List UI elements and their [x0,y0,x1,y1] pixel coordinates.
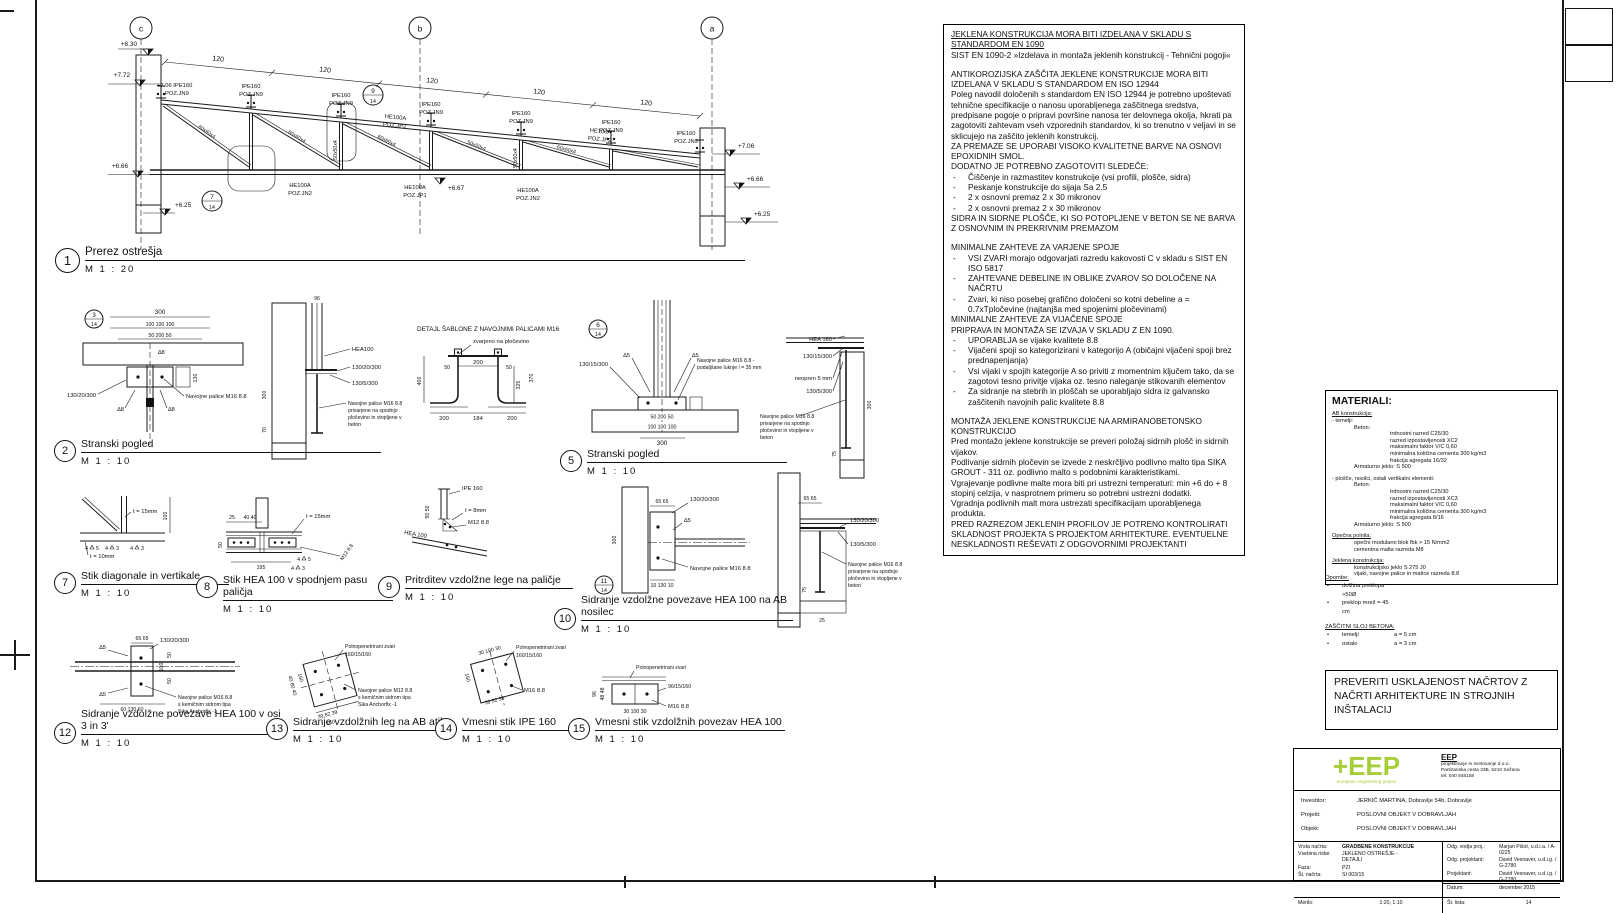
field-value: 1:20, 1:10 [1342,900,1442,906]
dim-label: 160 [463,673,471,683]
dim-label: 160 [296,673,304,683]
member-label: IPE 160 [462,486,483,492]
member-label: POZ.JP1 [403,193,427,199]
dim-label: 300 [155,309,166,316]
company-info: EEP projektiranje in svetovanje d.o.o. P… [1439,749,1560,790]
level-label: +6.67 [448,185,465,192]
text-line: •ostaloa = 3 cm [1325,640,1515,648]
text-line: minimalna količina cementa 300 kg/m3 [1332,509,1551,516]
dim-label: 50 [167,652,173,658]
weld-label: 3 [302,566,305,572]
text-line: •temeljia = 5 cm [1325,631,1515,639]
bolt-label: M12 8.8 [339,543,355,562]
dim-label: 75 [832,451,838,457]
plate-label: 96/15/160 [668,684,691,690]
dim-label: 50 200 50 [148,333,171,339]
detail-13: Polnopenetrirani zvari 160/15/160 160 40… [286,643,412,727]
dim-label: 40 40 [244,515,257,521]
dim-label: 30 100 30 [478,645,502,657]
text-line: trdnostni razred C25/30 [1332,489,1551,496]
caption-15: 15 Vmesni stik vzdolžnih povezav HEA 100… [568,716,785,745]
plate-label: t = 10mm [90,554,114,560]
caption-14: 14 Vmesni stik IPE 160 M 1 : 10 [435,716,574,745]
field-label: Odg. vodja proj.: [1443,844,1499,850]
detail-title: Stik HEA 100 v spodnjem pasu paličja [223,574,393,601]
detail-title: Stranski pogled [81,438,381,453]
detail-2-side: 96 HEA100 130/20/300 130/5/300 Navojne p… [262,296,402,459]
member-label: HEA 160 [809,337,832,343]
text-line: Armaturno jeklo: S 500 [1332,464,1551,471]
detail-number-circle: 5 [560,450,582,472]
detail-scale: M 1 : 10 [587,463,787,477]
text-line: konstrukcijsko jeklo S 275 J0 [1332,565,1551,572]
text-line: Podlivanje sidrnih pločevin se izvede z … [951,457,1237,478]
caption-1: 1 Prerez ostrešja M 1 : 20 [55,246,745,275]
company-line: tel: 040 848158 [1441,774,1558,780]
text-line: - plošče, nosilci, ostali vertikalni ele… [1332,476,1551,483]
dim-label: 75 [802,587,808,593]
dim-label: 300 [867,401,873,410]
text-line: Opečna polnila: [1332,533,1551,540]
field-label: Odg. projektant: [1443,857,1499,863]
template-detail: DETAJL ŠABLONE Z NAVOJNIMI PALICAMI M16 … [417,324,560,422]
detail-title: Prerez ostrešja [85,246,745,261]
dim-label: 370 [529,374,535,383]
text-line: Beton: [1332,482,1551,489]
detail-title: Vmesni stik vzdolžnih povezav HEA 100 [595,716,785,731]
eep-logo-text: +EEP [1333,755,1400,778]
dim-label: 200 [439,416,449,422]
fold-tick [934,876,936,888]
dim-label: 200 [473,360,483,366]
text-line: Beton: [1332,425,1551,432]
weld-label: 4 [291,566,294,572]
detail-number-circle: 7 [54,572,76,594]
detail-title: Sidranje vzdolžne povezave HEA 100 na AB… [581,594,793,621]
anchor-label: Navojne palice M16 8.8 [848,562,902,568]
drawing-meta-right: Odg. vodja proj.: Marjan Pišot, u.d.i.a.… [1443,842,1560,913]
text-line: frakcija agregata 16/32 [1332,458,1551,465]
anchor-label: Navojne palice M16 8.8 [178,695,232,701]
dim-label: 50 [167,678,173,684]
field-value: POSLOVNI OBJEKT V DOBRAVLJAH [1357,812,1456,818]
drawing-canvas: c b a 60x60x4 60x60x4 60x60x4 [0,0,940,775]
weld-label: 3 [141,546,144,552]
weld-label: 5 [96,546,99,552]
notes-panel: Opombe:•dolžina preklopa >50Ø•preklop mr… [1325,574,1515,648]
weld-label: 4 [105,546,108,552]
member-label: HE100A [289,183,311,189]
purlin-label: IPE160 [511,111,530,117]
detail-5-base: 6 14 50 200 50 100 100 100 300 ∆5 ∆5 130… [579,300,761,447]
callout-number: 7 [210,194,214,201]
detail-10-right: 65 65 130/20/300 130/5/300 Navojne palic… [778,473,902,627]
weld-label: Polnopenetrirani zvari [636,665,686,671]
field-value: David Vesnaver, u.d.i.g. / G-2780 [1499,857,1560,869]
field-value: SI 003/15 [1342,872,1442,878]
field-label: Vsebina risbe: [1294,851,1342,857]
text-line: DODATNO JE POTREBNO ZAGOTOVITI SLEDEČE: [951,161,1237,171]
purlin-label: POZ.JN9 [239,92,263,98]
weld-label: ∆5 [684,518,691,524]
corner-box [1565,44,1613,82]
field-label: Projekt: [1294,812,1357,818]
detail-2-plan: 3 14 300 100 100 100 50 200 50 ∆8 ∆8 ∆8 … [67,309,247,445]
detail-title: Stranski pogled [587,448,787,463]
member-label: HE100A [384,114,406,122]
text-line: •preklop mrež = 45 cm [1325,599,1515,616]
detail-9: IPE 160 t = 8mm M12 8.8 HEA 100 50 50 [404,486,489,556]
dim-label: 300 [612,536,618,545]
detail-scale: M 1 : 10 [581,621,793,635]
text-line: -Peskanje konstrukcije do sijaja Sa 2.5 [951,182,1237,192]
purlin-label: IPE160 [601,120,620,126]
fold-tick [624,876,626,888]
detail-number-circle: 10 [554,608,576,630]
dim-label: 25 [819,618,825,624]
plate-label: t = 8mm [465,508,486,514]
member-label: HE100A [404,185,426,191]
text-line [951,60,1237,69]
detail-title: Sidranje vzdolžnih leg na AB atiko [293,716,453,731]
detail-scale: M 1 : 10 [405,589,573,603]
text-line: opečni modularni blok fbk > 15 N/mm2 [1332,540,1551,547]
plate-label: 160/15/160 [516,653,542,659]
dim-label: 100 [163,512,169,521]
dim-label: 50 [218,542,224,548]
detail-scale: M 1 : 10 [223,601,393,615]
plate-label: t = 15mm [306,514,330,520]
text-line: Vgradnja podlivnih malt mora ustrezati s… [951,498,1237,519]
dim-label: 120 [426,77,438,85]
text-line: Vgrajevanje podlivne malte mora biti pri… [951,478,1237,499]
dim-label: 50 [444,365,450,371]
dim-label: 39 82 39 [484,695,505,706]
member-label: POZ.JP2 [383,122,407,130]
detail-15: Polnopenetrirani zvari 96/15/160 M16 8.8… [592,665,691,715]
title-block: +EEP european engineering project EEP pr… [1293,748,1561,881]
dim-label: 184 [473,416,483,422]
level-label: +6.25 [754,211,771,218]
member-label: HE100A [589,128,611,136]
plate-label: 130/20/300 [352,365,381,371]
text-line: MONTAŽA JEKLENE KONSTRUKCIJE NA ARMIRANO… [951,416,1237,437]
titleblock-header: +EEP european engineering project EEP pr… [1294,749,1560,791]
company-name: EEP [1441,753,1558,762]
dim-label: 120 [533,88,545,96]
level-label: +7.06 [738,143,755,150]
caption-9: 9 Pritrditev vzdolžne lege na paličje M … [378,574,573,603]
anchor-label: beton [760,435,773,441]
main-truss-drawing: c b a 60x60x4 60x60x4 60x60x4 [108,17,778,250]
anchor-label: Navojne palice M16 8.8 [348,401,402,407]
bolt-label: M12 8.8 [468,520,489,526]
anchor-label: Navojne palice M12 8.8 [358,688,412,694]
anchor-label: privarjene na spodnjo [348,408,398,414]
field-label: Datum: [1443,885,1499,891]
text-line: razred izpostavljenosti XC2 [1332,438,1551,445]
plate-label: 130/5/300 [850,542,876,548]
text-line [1325,616,1515,623]
dim-label: 96 [314,296,320,302]
purlin-label: POZ.JN9 [509,119,533,125]
purlin-label: POZ.JN9 [674,139,698,145]
detail-title: Sidranje vzdolžne povezave HEA 100 v osi… [81,708,281,735]
member-label: HEA100 [352,347,374,353]
member-label: 60x60x4 [556,144,577,155]
dim-label: 300 [262,391,268,400]
text-line: - temelji: [1332,418,1551,425]
plate-label: 130/20/300 [690,497,719,503]
detail-heading: DETAJL ŠABLONE Z NAVOJNIMI PALICAMI M16 [417,324,560,333]
purlin-label: POZ.JN9 [165,91,189,97]
level-label: +6.25 [175,202,192,209]
text-line: razred izpostavljenosti XC3 [1332,496,1551,503]
sheet-border-right [1562,0,1564,882]
field-value: David Vesnaver, u.d.i.g. / G-2780 [1499,871,1560,883]
member-label: POZ.JN2 [288,191,312,197]
field-label: Investitor: [1294,798,1357,804]
text-line: PRED RAZREZOM JEKLENIH PROFILOV JE POTRE… [951,519,1237,550]
drawing-meta-left: Vrsta načrta: GRADBENE KONSTRUKCIJE Vseb… [1294,842,1443,913]
text-line: PRIPRAVA IN MONTAŽA SE IZVAJA V SKLADU Z… [951,325,1237,335]
text-line: -2 x osnovni premaz 2 x 30 mikronov [951,203,1237,213]
dim-label: 400 [417,377,423,386]
member-label: POZ.JN2 [516,196,540,202]
text-line: -Zvari, ki niso posebej grafično določen… [951,294,1237,315]
dim-label: 50 200 50 [650,415,673,421]
callout-sheet: 14 [209,205,215,211]
ref-sheet: 14 [595,332,601,338]
weld-label: ∆5 [99,692,106,698]
dim-label: 100 [159,663,165,672]
detail-scale: M 1 : 10 [595,731,785,745]
dim-label: 50 50 [425,505,431,518]
bolt-label: M16 8.8 [668,704,689,710]
plate-label: 130/20/300 [160,638,189,644]
verify-note-box: PREVERITI USKLAJENOST NAČRTOV Z NAČRTI A… [1325,670,1558,730]
detail-number-circle: 15 [568,718,590,740]
text-line: -Za sidranje na stebrih in ploščah se up… [951,386,1237,407]
purlin-label: IPE160 [421,102,440,108]
anchor-label: privarjene na spodnjo [760,421,810,427]
text-line: ZA PREMAZE SE UPORABI VISOKO KVALITETNE … [951,141,1237,162]
caption-10: 10 Sidranje vzdolžne povezave HEA 100 na… [554,594,793,635]
dim-label: 65 65 [656,499,669,505]
dim-label: 130 [193,374,199,383]
text-line: •dolžina preklopa >50Ø [1325,582,1515,599]
caption-12: 12 Sidranje vzdolžne povezave HEA 100 v … [54,708,281,749]
eep-logo-tagline: european engineering project [1337,779,1397,784]
project-info: Investitor: JERKIČ MARTINA, Dobravlje 54… [1294,791,1560,842]
text-line: AB konstrukcija: [1332,411,1551,418]
plate-label: t = 15mm [133,509,157,515]
detail-scale: M 1 : 10 [81,735,281,749]
material-label: neopren 5 mm [795,376,833,382]
plate-label: 130/20/300 [850,518,879,524]
member-label: HE100A [517,188,539,194]
ref-number: 3 [92,312,96,319]
dim-label: 200 [507,416,517,422]
anchor-label: Navojne palice M16 8.8 [690,566,751,572]
callout-sheet: 14 [370,99,376,105]
dim-label: 325 [516,381,522,390]
materials-list: AB konstrukcija:- temelji:Beton:trdnostn… [1332,411,1551,578]
weld-label: 4 [297,557,300,563]
detail-scale: M 1 : 10 [293,731,453,745]
dim-label: 100 100 100 [146,322,175,328]
detail-number-circle: 12 [54,722,76,744]
weld-label: ∆5 [99,645,106,651]
level-label: +7.72 [114,72,131,79]
dim-label: 40 80 40 [286,675,297,696]
materials-panel: MATERIALI: AB konstrukcija:- temelji:Bet… [1325,390,1558,585]
detail-number-circle: 1 [55,248,80,273]
dim-label: 120 [640,99,652,107]
field-label: Projektant: [1443,871,1499,877]
materials-title: MATERIALI: [1332,395,1551,407]
dim-label: 300 [657,440,668,447]
caption-2: 2 Stranski pogled M 1 : 10 [54,438,381,467]
dim-label: 10 130 10 [650,583,673,589]
dim-label: 120 [319,66,331,74]
text-line: Jeklena konstrukcija: [1332,558,1551,565]
text-line: SIDRA IN SIDRNE PLOŠČE, KI SO POTOPLJENE… [951,213,1237,234]
text-line: minimalna količina cementa 300 kg/m3 [1332,451,1551,458]
field-value: december 2015 [1499,885,1560,891]
purlin-label: +7.06 IPE160 [157,83,192,89]
anchor-label: Navojne palice M16 8.8 [760,414,814,420]
text-line: MINIMALNE ZAHTEVE ZA VARJENE SPOJE [951,242,1237,252]
plate-label: 160/15/160 [345,652,371,658]
level-label: +8.30 [121,41,138,48]
anchor-label: Navojne palice M16 8.8 - [697,358,755,364]
detail-scale: M 1 : 10 [81,453,381,467]
corner-box [1565,8,1613,46]
text-line: -Vsi vijaki v spojih kategorije A so pri… [951,366,1237,387]
text-line: SIST EN 1090-2 »Izdelava in montaža jekl… [951,50,1237,60]
weld-label: 3 [116,546,119,552]
purlin-label: IPE160 [331,93,350,99]
ref-number: 11 [601,578,608,585]
level-label: +6.66 [112,163,129,170]
text-line: Opombe: [1325,574,1515,582]
text-line: cementna malta razreda M8 [1332,547,1551,554]
anchor-label: Navojne palice M16 8.8 [186,394,247,400]
plate-label: 130/5/300 [806,389,832,395]
purlin-label: POZ.JN9 [329,101,353,107]
detail-title: Vmesni stik IPE 160 [462,716,574,731]
anchor-label: Sika Anchorfix -1 [358,702,397,708]
anchor-label: pločevino in vtopljene v [348,415,402,421]
plate-label: 130/15/300 [579,362,608,368]
weld-label: 5 [308,557,311,563]
weld-label: ∆8 [158,350,165,356]
text-line: MINIMALNE ZAHTEVE ZA VIJAČENE SPOJE [951,314,1237,324]
detail-number-circle: 2 [54,440,76,462]
member-label: 50x50x4 [333,140,339,160]
text-line: Pred montažo jeklene konstrukcije se pre… [951,436,1237,457]
field-label: Merilo: [1294,900,1342,906]
plate-label: 130/20/300 [67,393,96,399]
text-line: ZAŠČITNI SLOJ BETONA: [1325,623,1515,631]
detail-14: 30 100 30 Polnopenetrirani zvari 160/15/… [463,645,566,711]
dim-label: 30 100 30 [623,709,646,715]
anchor-label: s kemičnim sidrom tipa [358,695,411,701]
dim-label: 120 [212,55,224,63]
text-line: maksimalni faktor V/C 0,60 [1332,502,1551,509]
anchor-label: pločevino in vtopljene v [760,428,814,434]
dim-label: 96 [592,691,598,697]
text-line: -ZAHTEVANE DEBELINE IN OBLIKE ZVAROV SO … [951,273,1237,294]
anchor-label: podaljšane luknje l = 35 mm [697,365,761,371]
dim-label: 25 [229,515,235,521]
text-line [951,233,1237,242]
text-line: -Vijačeni spoji so kategorizirani v kate… [951,345,1237,366]
dim-label: 65 65 [804,496,817,502]
anchor-label: beton [348,422,361,428]
text-line: -VSI ZVARI morajo odgovarjati razredu ka… [951,253,1237,274]
text-line: frakcija agregata 8/16 [1332,515,1551,522]
steel-specification-notes: JEKLENA KONSTRUKCIJA MORA BITI IZDELANA … [943,24,1245,556]
field-value: 14 [1499,900,1560,906]
field-label: Št. lista: [1443,900,1499,906]
ref-sheet: 14 [91,322,97,328]
text-line: trdnostni razred C25/30 [1332,431,1551,438]
detail-number-circle: 8 [196,576,218,598]
field-value: JERKIČ MARTINA, Dobravlje 54b, Dobravlje [1357,798,1472,804]
anchor-label: beton [848,583,861,589]
text-line: ANTIKOROZIJSKA ZAŠČITA JEKLENE KONSTRUKC… [951,69,1237,90]
purlin-label: IPE160 [676,131,695,137]
detail-number-circle: 9 [378,576,400,598]
dim-label: 70 [262,427,268,433]
dim-label: 100 100 100 [648,425,677,431]
field-value: JEKLENO OSTREŠJE - DETAJLI [1342,851,1414,863]
eep-logo: +EEP european engineering project [1294,749,1439,790]
callout-number: 9 [371,88,375,95]
purlin-label: POZ.JN9 [419,110,443,116]
weld-label: Polnopenetrirani zvari [345,644,395,650]
detail-10-left: 65 65 130/20/300 ∆5 Navojne palice M16 8… [595,487,751,594]
weld-label: ∆8 [168,407,175,413]
purlin-label: IPE160 [241,84,260,90]
detail-number-circle: 14 [435,718,457,740]
text-line: Poleg navodil določenih s standardom EN … [951,89,1237,140]
field-label: Objekt: [1294,826,1357,832]
caption-8: 8 Stik HEA 100 v spodnjem pasu paličja M… [196,574,393,615]
text-line: maksimalni faktor V/C 0,60 [1332,444,1551,451]
anchor-label: privarjene na spodnjo [848,569,898,575]
ref-number: 6 [596,322,600,329]
text-line: -Čiščenje in razmastitev konstrukcije (v… [951,172,1237,182]
plate-label: 130/5/300 [352,381,378,387]
text-line: Armaturno jeklo: S 500 [1332,522,1551,529]
dim-label: 195 [257,565,266,571]
dim-label: 50 [506,365,512,371]
level-label: +6.66 [747,176,764,183]
anchor-label: pločevino in vtopljene v [848,576,902,582]
field-value: Marjan Pišot, u.d.i.a. / A-0225 [1499,844,1560,856]
bolt-label: M16 8.8 [524,688,545,694]
weld-label: ∆8 [117,407,124,413]
text-line [951,407,1237,416]
member-label: 50x50x4 [513,148,519,168]
text-line: -2 x osnovni premaz 2 x 30 mikronov [951,192,1237,202]
detail-title: Pritrditev vzdolžne lege na paličje [405,574,573,589]
caption-5: 5 Stranski pogled M 1 : 10 [560,448,787,477]
grid-label: c [139,24,144,34]
